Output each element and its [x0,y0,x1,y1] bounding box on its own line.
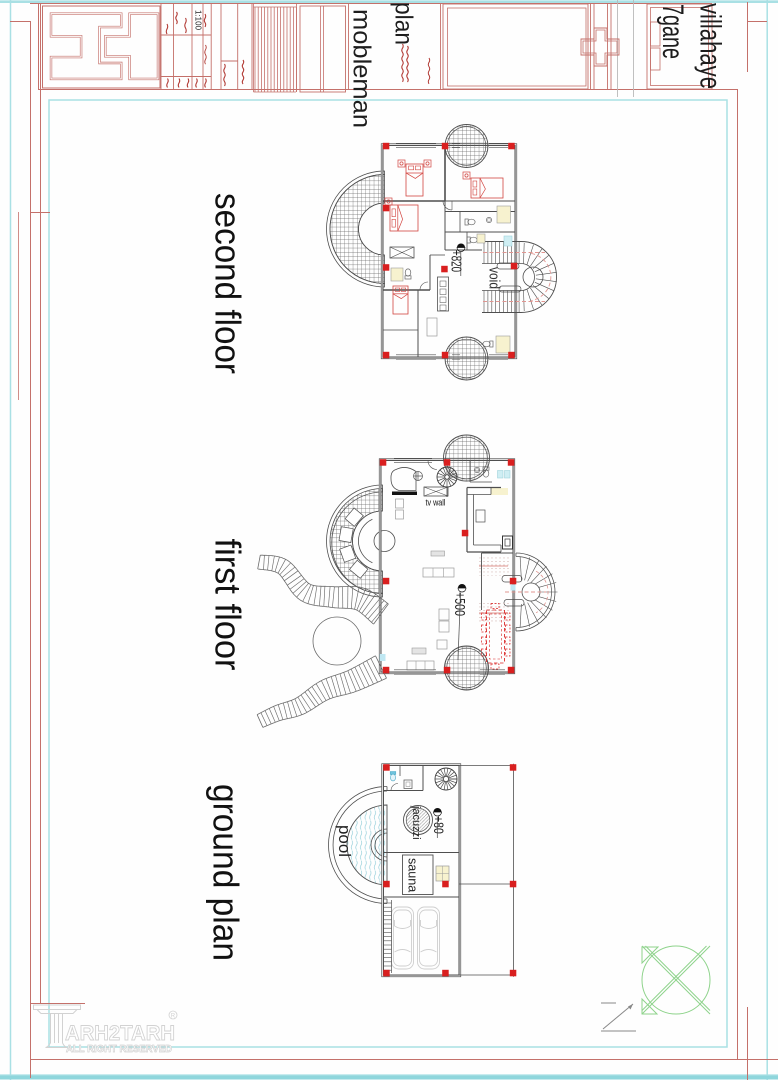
svg-text:sauna: sauna [406,858,420,892]
svg-text:tv wall: tv wall [426,498,446,508]
svg-text:jacuzzi: jacuzzi [410,805,422,840]
svg-text:villahaye: villahaye [694,3,727,89]
svg-text:+820: +820 [448,250,465,272]
svg-text:void: void [486,267,503,289]
svg-text:ARH2TARH: ARH2TARH [65,1022,175,1045]
svg-text:1:100: 1:100 [194,10,203,31]
svg-text:pool: pool [335,825,354,857]
svg-text:R: R [171,1014,176,1020]
svg-text:plan: plan [390,2,418,45]
svg-text:mobleman: mobleman [348,9,376,128]
svg-text:ALL RIGHT RESERVED: ALL RIGHT RESERVED [66,1043,172,1055]
svg-text:ground plan: ground plan [206,784,247,961]
svg-text:first floor: first floor [208,539,249,671]
svg-text:7gane: 7gane [656,4,689,59]
svg-text:second floor: second floor [208,193,249,374]
svg-text:+80: +80 [431,816,447,834]
